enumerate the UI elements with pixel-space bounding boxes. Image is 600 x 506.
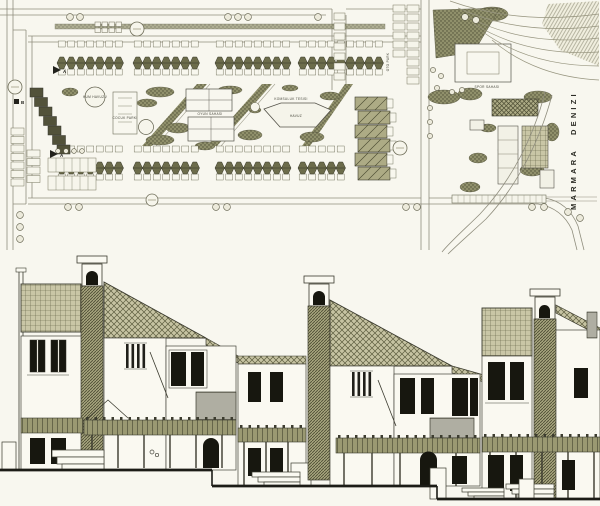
pergola: [482, 437, 600, 452]
sea-label: MARMARA DENIZI: [569, 91, 578, 210]
pergola: [336, 438, 480, 453]
gable-wall: [330, 366, 394, 486]
scanned-architectural-drawing: KUM HAVUZU COCUK PARKI OYUN SAHASI KOMSU…: [0, 0, 600, 506]
chimney-arch: [86, 271, 98, 285]
sea-label-word2: DENIZI: [569, 91, 578, 135]
community-label: KOMSULUK TESISI: [274, 97, 307, 101]
gable-wall: [104, 338, 166, 470]
sports-court: [455, 44, 511, 82]
pergola: [84, 420, 236, 435]
play-structure: [113, 92, 137, 134]
kids-park-label: COCUK PARKI: [112, 116, 137, 120]
marker-a-north-label: A: [63, 69, 67, 74]
apartment-strip: [355, 97, 396, 180]
louver-window: [587, 312, 597, 338]
link-bay-1: [238, 356, 311, 486]
chimney-3: [530, 289, 560, 499]
chimney-2: [304, 276, 334, 480]
sandpit-label: KUM HAVUZU: [83, 95, 107, 99]
pedestal: [519, 479, 534, 499]
elevation-drawing: [0, 256, 600, 499]
main-roof: [104, 282, 206, 338]
sea-label-word1: MARMARA: [569, 148, 578, 210]
marker-b-label: B: [21, 100, 25, 105]
arched-door: [203, 438, 219, 468]
main-roof: [330, 300, 452, 366]
site-plan: KUM HAVUZU COCUK PARKI OYUN SAHASI KOMSU…: [0, 0, 599, 254]
house-3: [462, 289, 600, 499]
balcony-railing: [196, 392, 236, 420]
sports-field-label: SPOR SAHASI: [475, 85, 500, 89]
housing-row-south: [57, 146, 346, 180]
chimney-arch: [539, 305, 550, 318]
house-1: [2, 256, 238, 470]
dune-hatch: [542, 1, 599, 66]
boardwalk: [452, 195, 546, 203]
pool-label: HAVUZ: [290, 114, 302, 118]
tile-roof: [482, 308, 532, 356]
tile-roof: [21, 284, 81, 332]
drawing-canvas: KUM HAVUZU COCUK PARKI OYUN SAHASI KOMSU…: [0, 0, 600, 506]
section-marker-b-icon: [14, 99, 19, 104]
chimney-arch: [313, 291, 325, 305]
terraced-block: [30, 88, 70, 154]
parking-label: OTO PARK: [386, 52, 390, 71]
play-field-label: OYUN SAHASI: [197, 112, 222, 116]
planter-wall: [2, 442, 16, 470]
